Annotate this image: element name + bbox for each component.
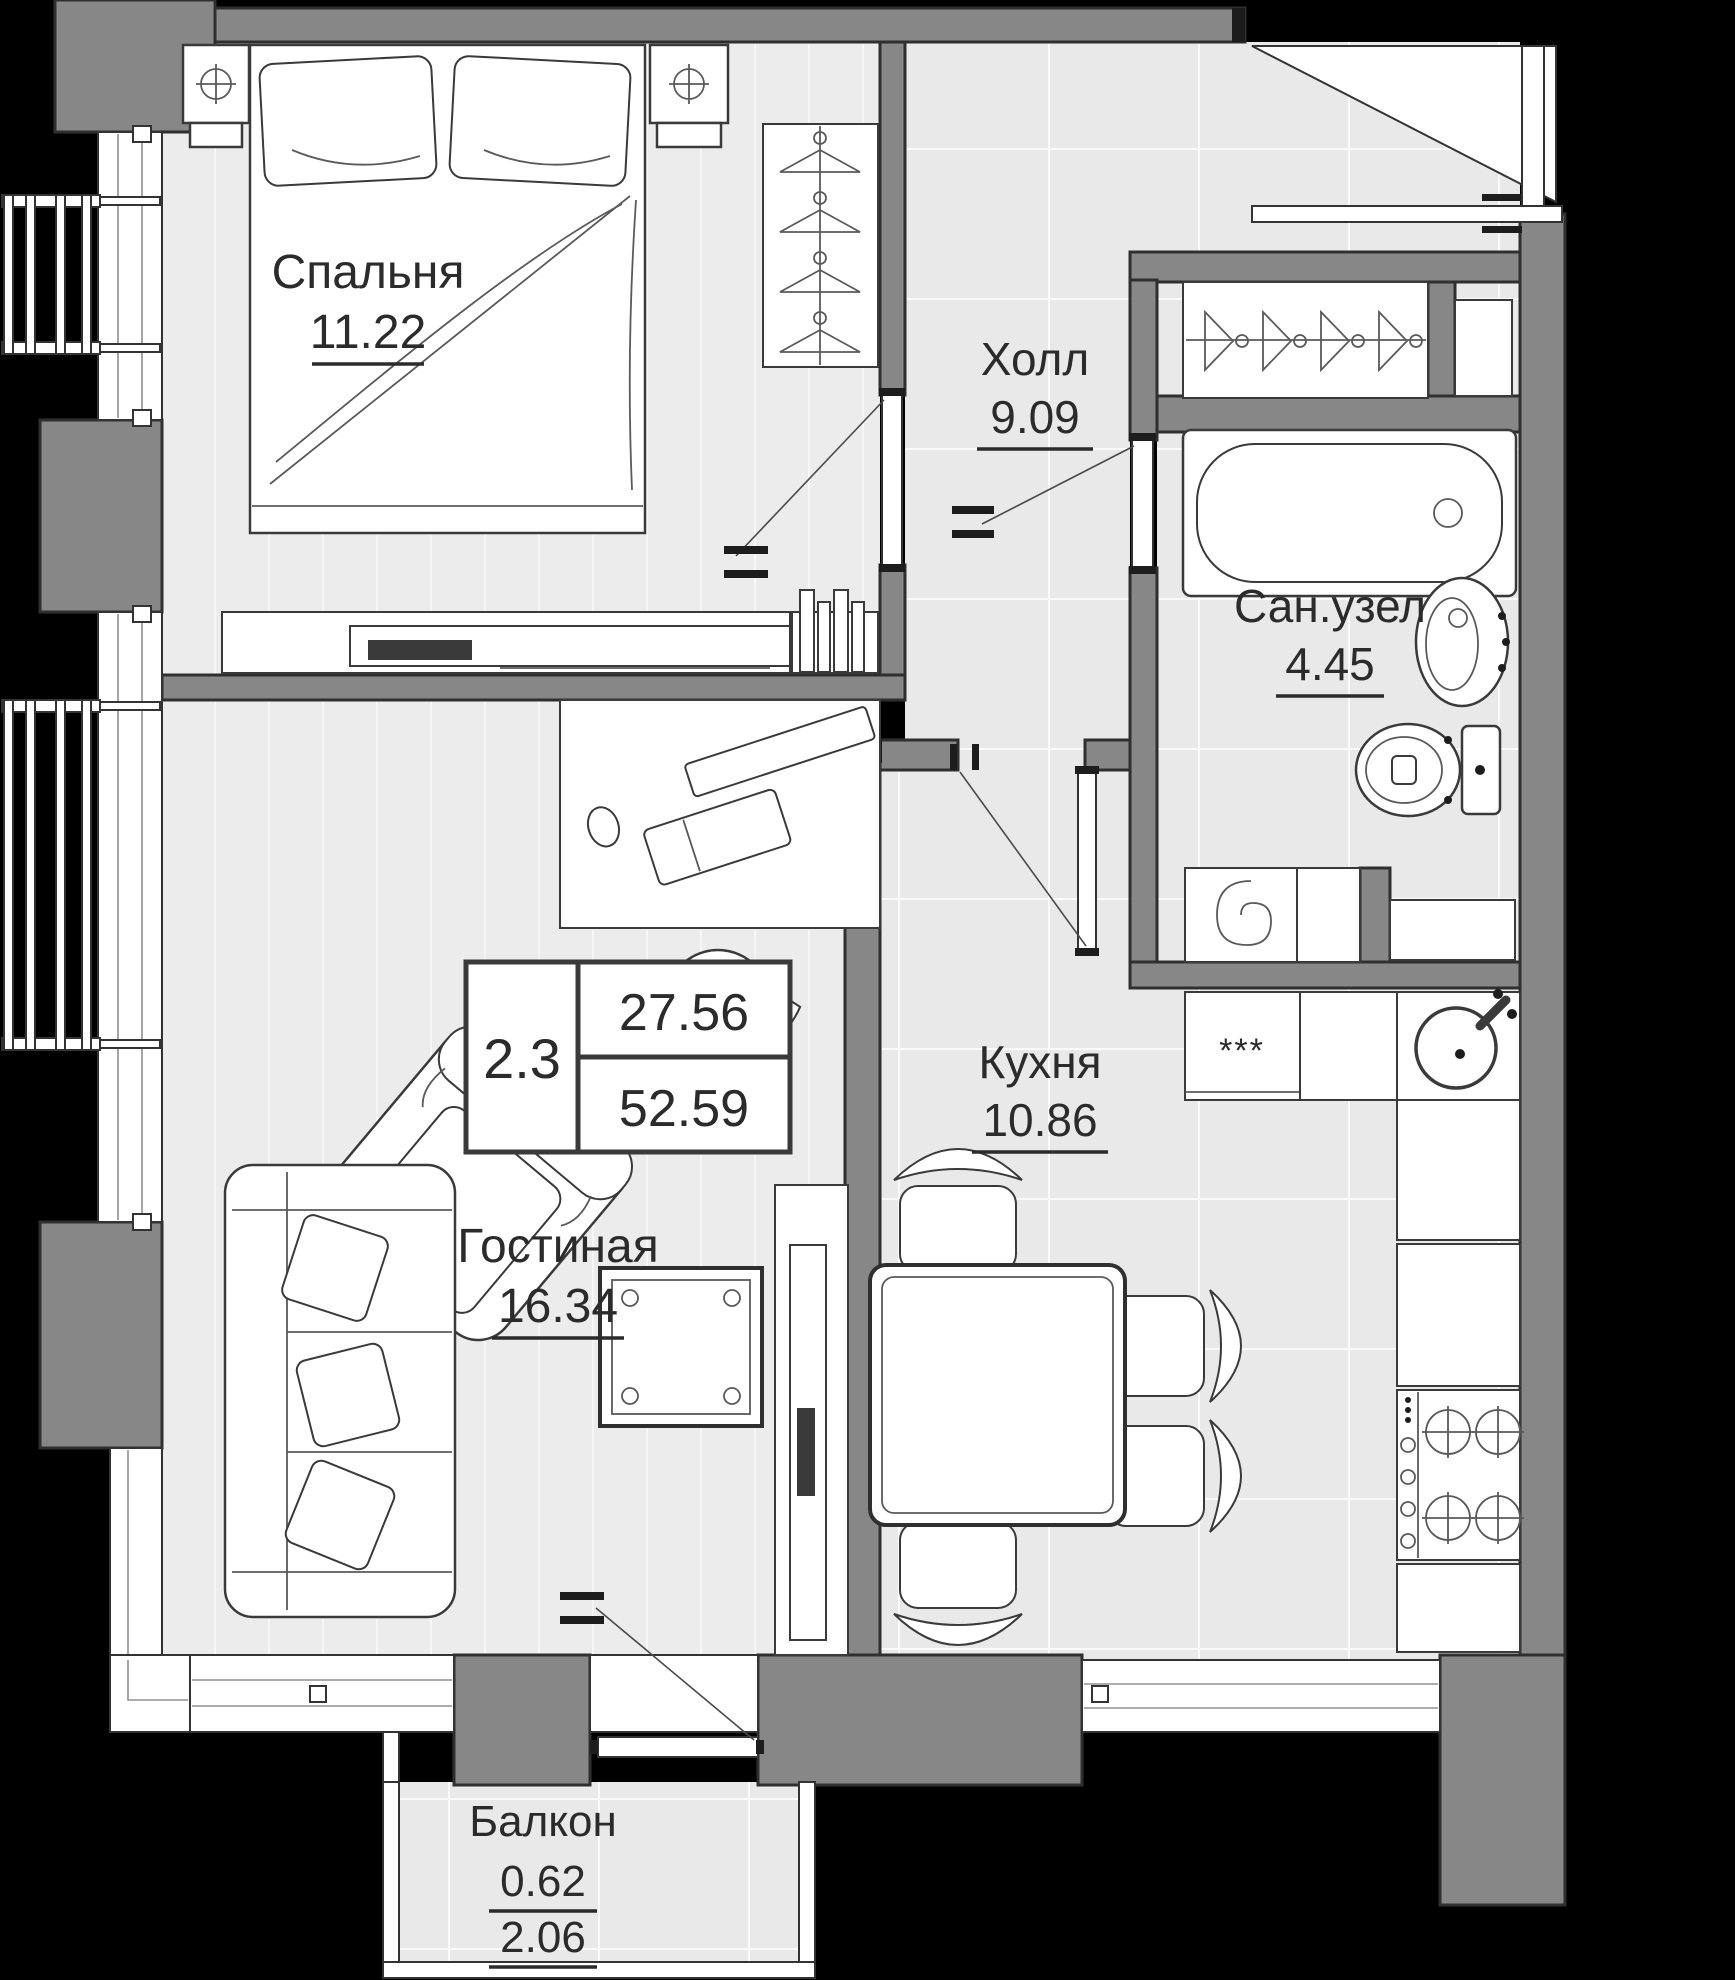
fridge: ***: [1185, 992, 1300, 1100]
stove: [1397, 1390, 1524, 1560]
bathtub: [1183, 430, 1516, 596]
wall-bottom-big-pillar: [758, 1655, 1082, 1785]
wall-under-closet: [1157, 396, 1520, 432]
info-box: 2.3 27.56 52.59: [466, 962, 790, 1152]
info-total-area: 52.59: [619, 1080, 749, 1138]
toilet: [1356, 724, 1500, 816]
counter: [1397, 1564, 1520, 1652]
living-bottom-window: [190, 1655, 454, 1732]
wall-bathroom-top: [1130, 252, 1520, 282]
wall-bathroom-left-upper: [1130, 280, 1157, 440]
wall-top: [150, 8, 1245, 42]
wall-bedroom-hall-upper: [880, 42, 905, 395]
bath-counter: [1297, 868, 1360, 962]
wall-hall-bottom-left: [880, 740, 958, 770]
label-bathroom-name: Сан.узел: [1234, 580, 1426, 632]
living-window-left: [98, 606, 162, 1230]
wall-left-mid-block: [40, 420, 162, 612]
hall-closet: [1183, 282, 1512, 398]
wall-right: [1520, 214, 1565, 1660]
label-kitchen-name: Кухня: [978, 1036, 1101, 1088]
info-plan-type: 2.3: [483, 1027, 561, 1090]
dining-chair: [894, 1522, 1022, 1645]
coffee-table: [600, 1268, 762, 1426]
entrance-threshold: [1252, 206, 1562, 222]
tv: [368, 640, 472, 660]
wardrobe: [763, 124, 878, 367]
label-balcony-area-reduced: 0.62: [500, 1857, 586, 1906]
label-hall-name: Холл: [981, 333, 1089, 385]
dining-table: [870, 1265, 1125, 1525]
fridge-mark: ***: [1219, 1032, 1265, 1070]
label-kitchen-area: 10.86: [982, 1094, 1097, 1146]
floor-plan-canvas: ***: [0, 0, 1735, 1980]
wall-top-endcap: [1232, 8, 1245, 42]
wall-left-bottom-block: [40, 1222, 162, 1448]
tall-cabinet: [775, 1185, 848, 1655]
hall-shelf: [1455, 300, 1512, 396]
pillow: [449, 55, 631, 186]
sink: [1416, 578, 1510, 706]
dining-chair: [1108, 1290, 1241, 1402]
nightstand-right: [650, 45, 728, 147]
dining-chair: [894, 1149, 1022, 1272]
kitchen-sink: [1397, 989, 1520, 1100]
counter: [1397, 1100, 1520, 1240]
wall-closet-divider: [1428, 282, 1455, 398]
wall-washer-divider: [1360, 868, 1390, 962]
nightstand-left: [183, 45, 249, 147]
label-hall-area: 9.09: [990, 391, 1080, 443]
label-living-name: Гостиная: [457, 1220, 658, 1273]
wall-bathroom-left-lower: [1130, 568, 1157, 962]
sofa: [225, 1165, 455, 1617]
wall-bottom-small-pillar: [454, 1655, 590, 1785]
dining-chair: [1108, 1420, 1241, 1532]
label-bathroom-area: 4.45: [1285, 638, 1375, 690]
sideboard-tv: [222, 612, 790, 673]
kitchen-bottom-window: [1082, 1660, 1440, 1732]
wall-hall-bottom-right: [1085, 740, 1130, 770]
label-bedroom-area: 11.22: [310, 306, 427, 359]
bath-cabinet: [1390, 900, 1515, 960]
label-bedroom-name: Спальня: [272, 246, 465, 299]
bedroom-window: [98, 126, 162, 426]
entrance-door-frame: [1522, 46, 1544, 206]
wall-bottomright-block: [1440, 1655, 1565, 1905]
floor-plan: ***: [0, 0, 1735, 1980]
washing-machine: [1185, 868, 1360, 962]
counter: [1300, 992, 1397, 1100]
desk: [560, 700, 898, 928]
wall-bathroom-bottom: [1130, 962, 1565, 988]
counter: [1397, 1244, 1520, 1386]
label-living-area: 16.34: [498, 1280, 618, 1333]
label-balcony-area-full: 2.06: [500, 1913, 586, 1962]
wall-bedroom-bottom: [162, 675, 905, 700]
pillow: [259, 56, 437, 187]
label-balcony-name: Балкон: [469, 1797, 617, 1846]
info-living-area: 27.56: [619, 984, 749, 1042]
